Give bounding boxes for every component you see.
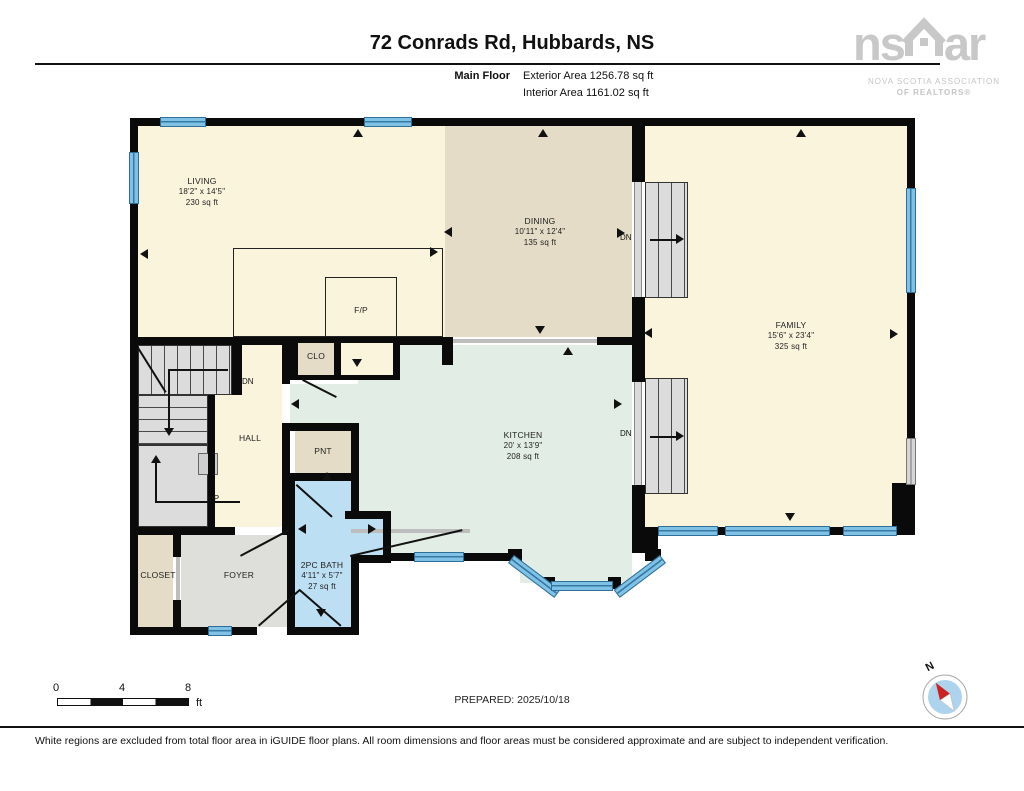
- exterior-area: Exterior Area 1256.78 sq ft: [523, 70, 653, 82]
- hall-floor: [215, 395, 282, 527]
- logo-tagline-2: OF REALTORS®: [845, 88, 1023, 97]
- scale-tick-0: 0: [53, 682, 59, 694]
- foyer-label: FOYER: [224, 570, 254, 581]
- prepared-date: PREPARED: 2025/10/18: [0, 694, 1024, 706]
- stair-arrow-line: [168, 369, 170, 429]
- wall: [130, 118, 915, 126]
- stair-right-arrow-icon: [676, 431, 684, 441]
- stair-arrow-line: [155, 462, 157, 502]
- stairs-dn-label: DN: [620, 233, 632, 242]
- living-label: LIVING18'2" x 14'5"230 sq ft: [179, 176, 225, 209]
- stairs-dn-label: DN: [242, 377, 254, 386]
- wall: [173, 535, 181, 557]
- wall: [442, 345, 453, 365]
- wall: [351, 423, 359, 481]
- closet-door-line: [176, 557, 180, 600]
- alcove-floor: [341, 343, 393, 375]
- open-boundary-line: [453, 339, 597, 343]
- wall: [173, 600, 181, 627]
- bath-label: 2PC BATH4'11" x 5'7"27 sq ft: [301, 560, 344, 593]
- nsar-logo: ns ar: [853, 16, 984, 67]
- window: [364, 117, 412, 127]
- wall: [282, 345, 290, 384]
- wall: [632, 297, 645, 382]
- opening-arrow-icon: [538, 129, 548, 137]
- wall: [232, 345, 242, 395]
- hall-label: HALL: [239, 433, 261, 444]
- window: [906, 188, 916, 293]
- opening-arrow-icon: [291, 399, 299, 409]
- bay-window: [551, 581, 613, 591]
- house-icon: [904, 16, 944, 67]
- wall: [287, 481, 295, 627]
- window: [658, 526, 718, 536]
- window: [843, 526, 897, 536]
- opening-arrow-icon: [796, 129, 806, 137]
- bath-floor: [295, 481, 351, 627]
- opening-arrow-icon: [535, 326, 545, 334]
- pantry-label: PNT: [314, 446, 332, 457]
- kitchen-label: KITCHEN20' x 13'9"208 sq ft: [504, 430, 543, 463]
- opening-arrow-icon: [563, 347, 573, 355]
- scale-tick-8: 8: [185, 682, 191, 694]
- logo-ns: ns: [853, 20, 904, 67]
- footer-disclaimer: White regions are excluded from total fl…: [35, 735, 995, 747]
- hall-floor-upper: [242, 345, 282, 395]
- dining-label: DINING10'11" x 12'4"135 sq ft: [515, 216, 566, 249]
- header-rule: [35, 63, 940, 65]
- opening-arrow-icon: [614, 399, 622, 409]
- wall: [345, 511, 391, 519]
- wall: [632, 118, 645, 182]
- stair-opening: [634, 382, 642, 485]
- stair-arrow-line: [650, 239, 678, 241]
- family-label: FAMILY15'6" x 23'4"325 sq ft: [768, 320, 814, 353]
- wall: [130, 337, 290, 345]
- stairs-dn-label: DN: [620, 429, 632, 438]
- stairs-landing: [138, 395, 208, 445]
- wall: [287, 423, 359, 431]
- clo-label: CLO: [307, 351, 325, 362]
- fireplace-label: F/P: [354, 305, 368, 315]
- opening-arrow-icon: [444, 227, 452, 237]
- opening-arrow-icon: [316, 609, 326, 617]
- stair-arrow-line: [650, 436, 678, 438]
- stairs-up-label: UP: [208, 494, 219, 503]
- window: [414, 552, 464, 562]
- stair-arrow-line: [168, 369, 228, 371]
- stair-arrow-line: [155, 501, 240, 503]
- footer-rule: [0, 726, 1024, 728]
- floor-label: Main Floor: [360, 70, 510, 82]
- stair-right-arrow-icon: [676, 234, 684, 244]
- north-label: N: [924, 660, 937, 674]
- wall: [130, 627, 257, 635]
- opening-arrow-icon: [298, 524, 306, 534]
- window: [725, 526, 830, 536]
- interior-area: Interior Area 1161.02 sq ft: [523, 87, 649, 99]
- wall: [208, 395, 215, 527]
- opening-arrow-icon: [352, 359, 362, 367]
- wall: [287, 627, 359, 635]
- wall: [400, 337, 453, 345]
- logo-ar: ar: [944, 20, 984, 67]
- window: [160, 117, 206, 127]
- logo-tagline-1: NOVA SCOTIA ASSOCIATION: [845, 77, 1023, 86]
- opening-arrow-icon: [140, 249, 148, 259]
- opening-arrow-icon: [322, 472, 332, 480]
- opening-arrow-icon: [353, 129, 363, 137]
- stair-down-arrow-icon: [164, 428, 174, 436]
- floorplan-page: 72 Conrads Rd, Hubbards, NS Main Floor E…: [0, 0, 1024, 791]
- wall: [351, 555, 359, 635]
- wall: [385, 553, 414, 561]
- window: [129, 152, 139, 204]
- opening-arrow-icon: [644, 328, 652, 338]
- sliding-door: [906, 438, 916, 485]
- stair-up-arrow-icon: [151, 455, 161, 463]
- opening-arrow-icon: [890, 329, 898, 339]
- scale-tick-4: 4: [119, 682, 125, 694]
- stair-opening: [634, 182, 642, 297]
- closet-label: CLOSET: [140, 570, 175, 581]
- opening-arrow-icon: [785, 513, 795, 521]
- compass-icon: [922, 674, 968, 720]
- window: [208, 626, 232, 636]
- wall: [130, 527, 235, 535]
- opening-arrow-icon: [430, 247, 438, 257]
- opening-arrow-icon: [368, 524, 376, 534]
